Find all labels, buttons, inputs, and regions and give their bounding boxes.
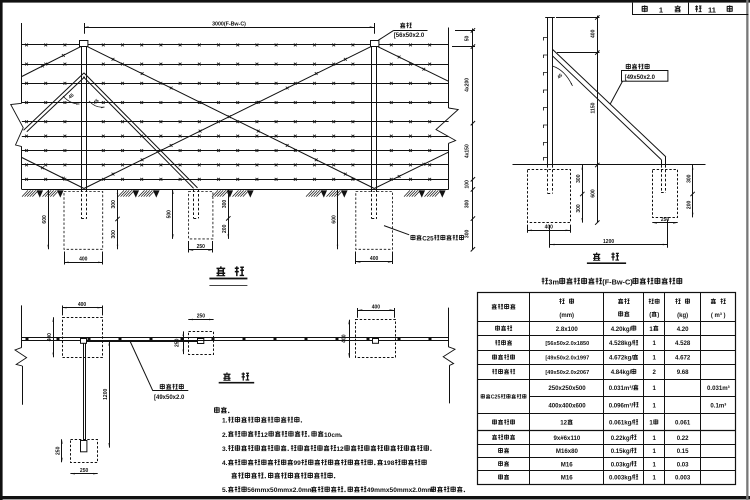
svg-text:M16: M16 [561, 475, 573, 482]
svg-text:0.061: 0.061 [675, 420, 691, 427]
svg-text:49mmx50mmx2.0mm: 49mmx50mmx2.0mm [367, 487, 433, 494]
svg-text:[49x50x2.0: [49x50x2.0 [154, 395, 185, 401]
svg-text:4.672kg/: 4.672kg/ [609, 355, 633, 362]
svg-text:198: 198 [383, 460, 394, 467]
svg-text:1: 1 [659, 5, 663, 14]
svg-text:250x250x500: 250x250x500 [548, 385, 586, 392]
svg-text:2.8x100: 2.8x100 [556, 326, 579, 333]
svg-text:4.20kg/: 4.20kg/ [611, 326, 632, 333]
svg-text:56mmx50mmx2.0mm: 56mmx50mmx2.0mm [247, 487, 313, 494]
svg-text:0.22kg/: 0.22kg/ [611, 435, 632, 442]
svg-text:C25: C25 [422, 235, 434, 242]
svg-text:300: 300 [111, 230, 117, 239]
svg-text:M16x80: M16x80 [556, 448, 579, 455]
svg-text:(F-Bw-C): (F-Bw-C) [602, 277, 633, 286]
svg-text:12: 12 [261, 432, 269, 439]
svg-text:4.528kg/: 4.528kg/ [609, 340, 633, 347]
svg-text:500: 500 [167, 210, 173, 219]
svg-text:[49x50x2.0x2067: [49x50x2.0x2067 [545, 370, 589, 376]
svg-text:600: 600 [591, 189, 597, 198]
svg-text:0.1m³: 0.1m³ [710, 402, 726, 409]
svg-text:1200: 1200 [103, 389, 109, 400]
svg-text:( m³ ): ( m³ ) [711, 312, 726, 319]
svg-text:400: 400 [591, 29, 597, 38]
svg-text:50: 50 [464, 36, 470, 42]
svg-text:400: 400 [372, 304, 381, 310]
svg-text:[49x50x2.0x1997: [49x50x2.0x1997 [545, 356, 589, 362]
svg-text:100: 100 [464, 180, 470, 189]
svg-text:250: 250 [197, 244, 206, 250]
svg-text:99: 99 [294, 460, 302, 467]
svg-text:5.: 5. [222, 487, 228, 494]
svg-text:300: 300 [222, 200, 228, 209]
svg-text:0.22: 0.22 [677, 435, 689, 442]
svg-text:0.15: 0.15 [677, 448, 689, 455]
svg-text:250: 250 [661, 217, 670, 223]
svg-text:(: ( [649, 313, 651, 319]
svg-text:M16: M16 [561, 461, 573, 468]
svg-text:4.84kg/: 4.84kg/ [611, 369, 632, 376]
svg-text:4.672: 4.672 [675, 355, 691, 362]
svg-text:3000(F-Bw-C): 3000(F-Bw-C) [212, 21, 246, 27]
svg-text:400: 400 [78, 302, 87, 308]
svg-text:300: 300 [111, 200, 117, 209]
svg-text:9x#6x110: 9x#6x110 [554, 435, 581, 442]
svg-text:(kg): (kg) [677, 313, 688, 319]
svg-text:9.68: 9.68 [677, 369, 689, 376]
svg-text:400: 400 [342, 334, 348, 343]
svg-text:300: 300 [686, 174, 692, 183]
svg-text:10cm: 10cm [324, 432, 341, 439]
svg-text:400: 400 [370, 256, 379, 262]
svg-text:250: 250 [80, 468, 89, 474]
svg-text:0.03kg/: 0.03kg/ [611, 461, 632, 468]
svg-text:2.: 2. [222, 432, 228, 439]
svg-text:): ) [657, 313, 659, 319]
svg-text:250: 250 [197, 314, 206, 320]
svg-text:0.15kg/: 0.15kg/ [611, 448, 632, 455]
svg-text:300: 300 [464, 230, 470, 239]
svg-text:400: 400 [79, 257, 88, 263]
svg-text:0.031m³: 0.031m³ [707, 385, 730, 392]
svg-text:4.528: 4.528 [675, 340, 691, 347]
svg-text:600: 600 [331, 215, 337, 224]
svg-text:1200: 1200 [603, 239, 614, 245]
svg-text:4x200: 4x200 [464, 78, 470, 92]
svg-text:200: 200 [222, 224, 228, 233]
svg-text:400: 400 [545, 225, 554, 231]
svg-text:250: 250 [56, 446, 62, 455]
svg-text:3.: 3. [222, 446, 228, 453]
svg-text:300: 300 [576, 204, 582, 213]
svg-text:200: 200 [686, 201, 692, 210]
svg-text:400x400x600: 400x400x600 [548, 402, 586, 409]
svg-text:0.03: 0.03 [677, 461, 689, 468]
svg-text:[49x50x2.0: [49x50x2.0 [625, 75, 656, 81]
svg-text:600: 600 [42, 215, 48, 224]
svg-text:4x150: 4x150 [464, 144, 470, 158]
svg-text:0.003: 0.003 [675, 475, 691, 482]
svg-text:3m: 3m [548, 277, 559, 286]
svg-text:4.: 4. [222, 460, 228, 467]
svg-text:4.20: 4.20 [677, 326, 689, 333]
svg-text:1.: 1. [222, 418, 228, 425]
svg-text:[56x50x2.0x1850: [56x50x2.0x1850 [545, 341, 589, 347]
svg-text:0.096m³/: 0.096m³/ [609, 402, 634, 409]
svg-text:12: 12 [336, 446, 344, 453]
svg-text:0.003kg/: 0.003kg/ [609, 475, 633, 482]
svg-text:12: 12 [560, 420, 567, 427]
svg-text:250: 250 [175, 338, 181, 347]
svg-text:(mm): (mm) [559, 313, 574, 319]
svg-text:0.061kg/: 0.061kg/ [609, 420, 633, 427]
svg-text:11: 11 [708, 5, 716, 14]
svg-text:300: 300 [464, 200, 470, 209]
svg-text:0.031m³/: 0.031m³/ [609, 385, 634, 392]
svg-text:C25: C25 [491, 395, 501, 401]
svg-text:[56x50x2.0: [56x50x2.0 [394, 33, 425, 39]
svg-text:400: 400 [47, 333, 53, 342]
svg-text:1150: 1150 [591, 102, 597, 113]
svg-text:300: 300 [576, 174, 582, 183]
